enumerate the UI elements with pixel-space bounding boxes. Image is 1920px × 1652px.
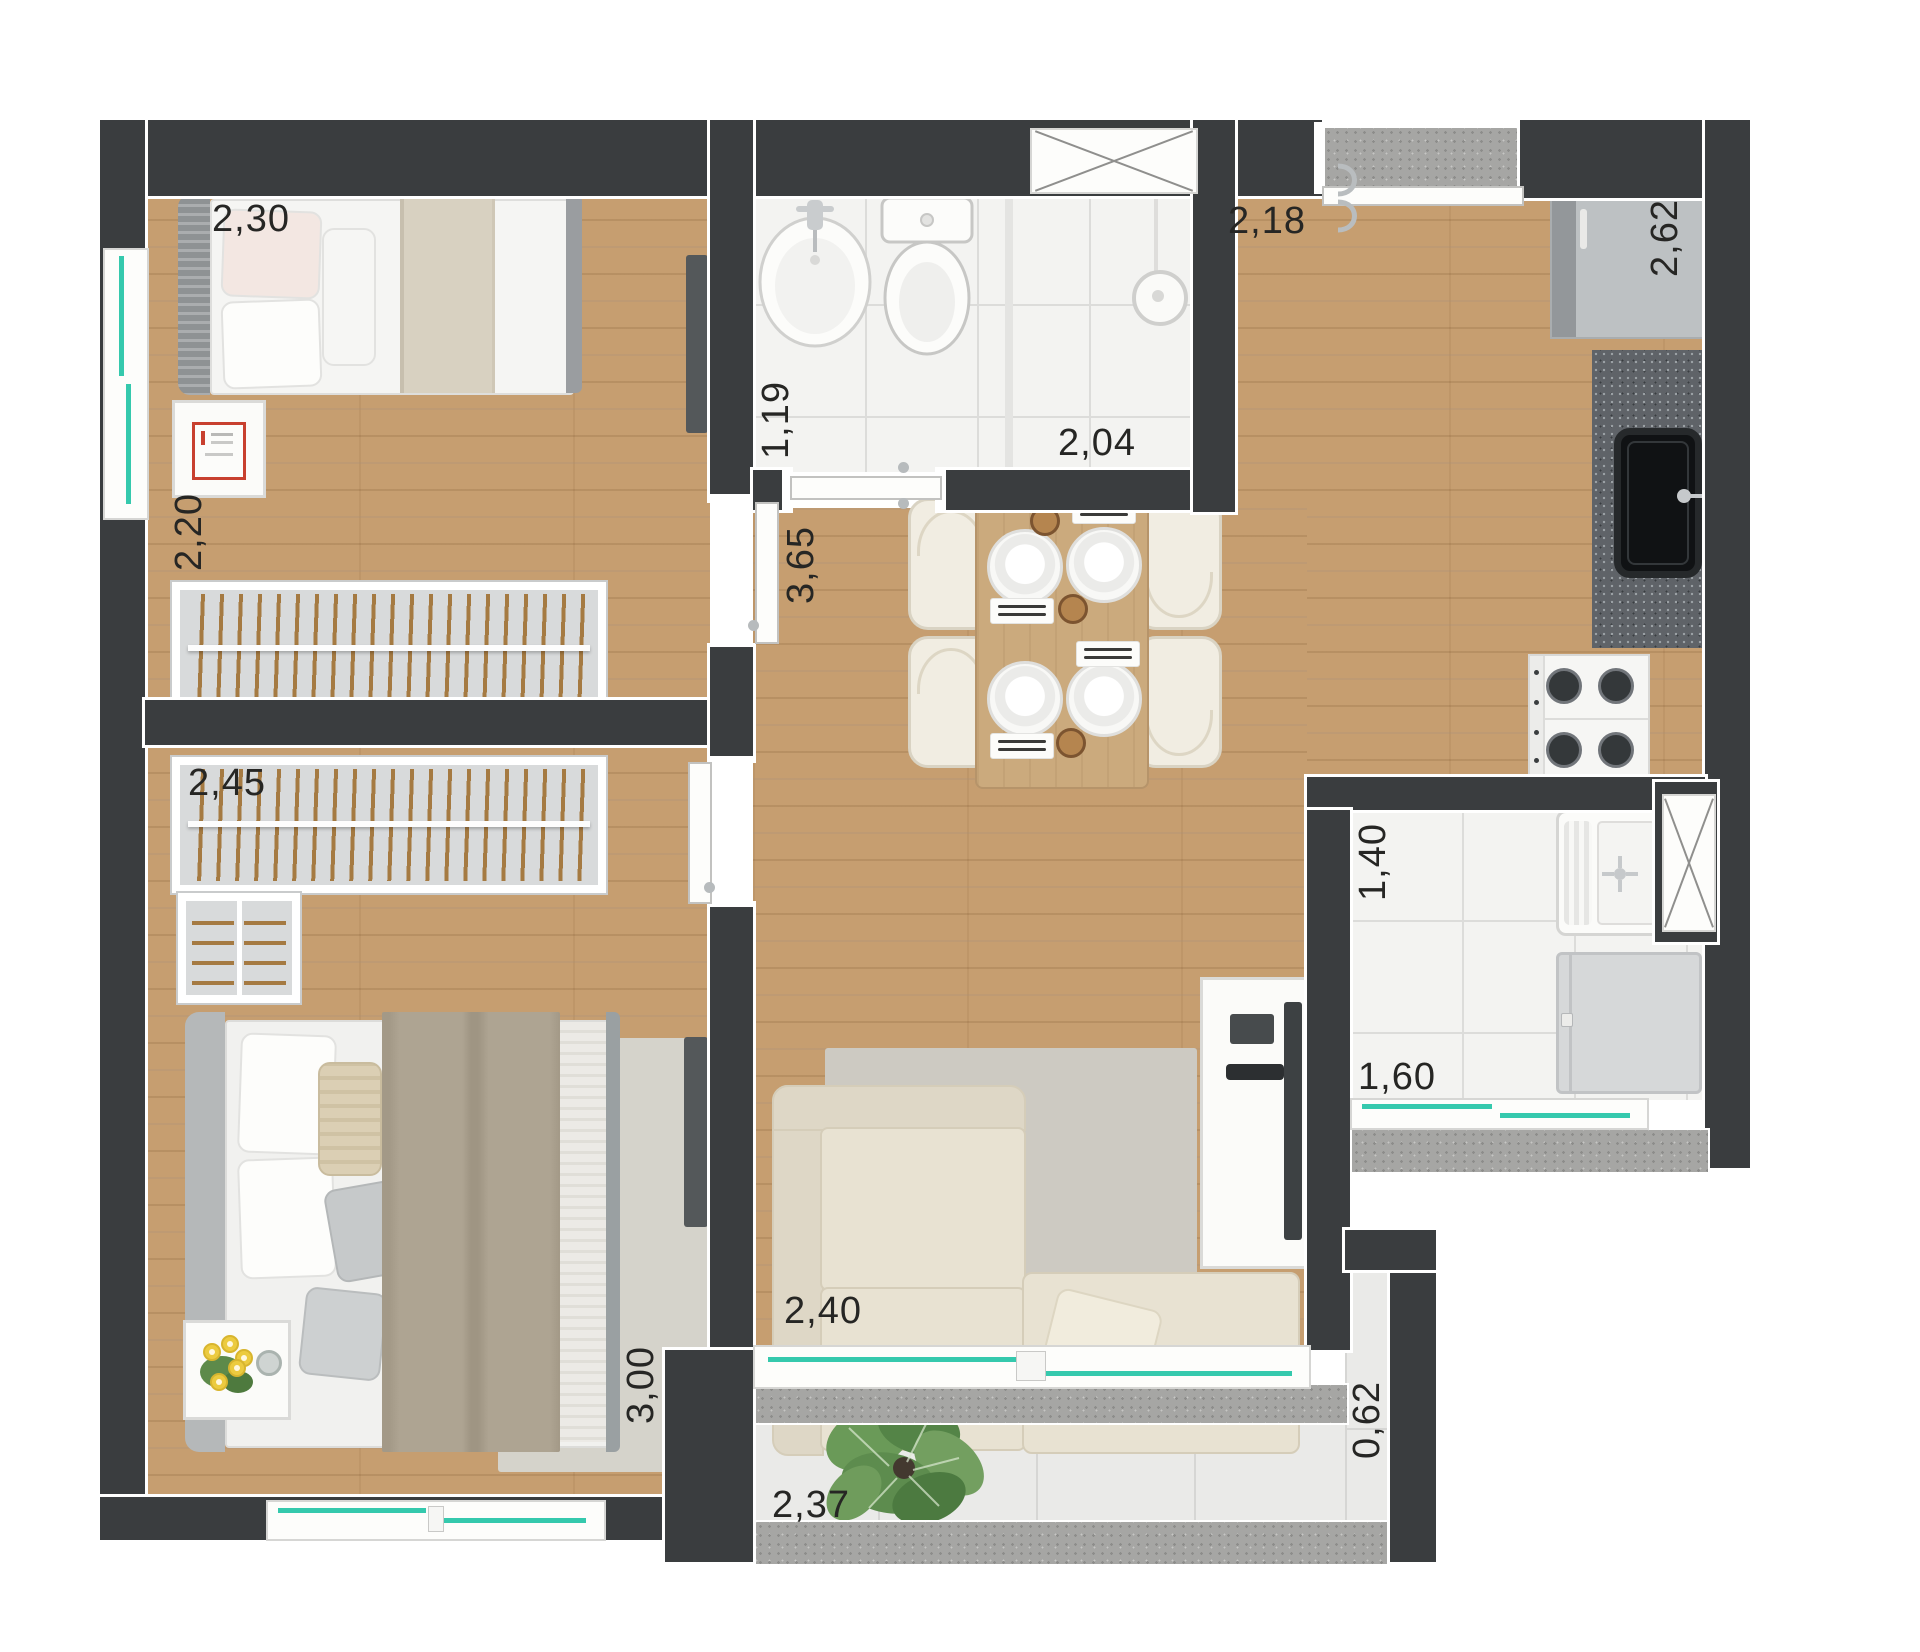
plate xyxy=(1066,661,1142,737)
pillow xyxy=(322,228,376,366)
bathroom-window xyxy=(1030,128,1198,194)
label-service-width: 1,40 xyxy=(1352,802,1392,922)
window-handle xyxy=(428,1506,444,1532)
laundry-faucet xyxy=(1598,852,1642,896)
door-handle xyxy=(704,882,715,893)
label-closet-wall-width: 2,45 xyxy=(188,762,266,805)
wall-balcony-nook-cap xyxy=(1345,1230,1436,1270)
service-window-glass xyxy=(1500,1113,1630,1118)
pillow-gray xyxy=(298,1286,389,1382)
wall-center-upper xyxy=(710,120,753,500)
label-balcony-depth: 0,62 xyxy=(1346,1360,1386,1480)
door-handle xyxy=(898,462,909,473)
cup xyxy=(1056,728,1086,758)
balcony-sill xyxy=(720,1383,1349,1425)
drawer-unit xyxy=(178,893,300,1003)
bed-single-headboard xyxy=(178,195,210,395)
sofa-seat xyxy=(820,1127,1026,1291)
wardrobe-rod xyxy=(188,821,589,827)
door-jamb xyxy=(710,494,753,501)
pillow xyxy=(220,298,322,389)
bed-double-footboard xyxy=(606,1012,620,1452)
sliding-door-glass xyxy=(768,1357,1018,1362)
bed-single-blanket xyxy=(400,197,495,393)
plate xyxy=(987,661,1063,737)
bed-double-ribbed-mattress xyxy=(560,1022,606,1442)
service-sill xyxy=(1350,1128,1710,1174)
label-bathroom-entry: 1,19 xyxy=(755,360,795,480)
door-jamb xyxy=(710,756,753,763)
label-bathroom-width: 2,04 xyxy=(1058,422,1136,465)
label-balcony-width: 2,37 xyxy=(772,1484,850,1527)
label-bedroom1-width: 2,30 xyxy=(212,198,290,241)
cup xyxy=(256,1350,282,1376)
bathroom-sink xyxy=(758,198,872,350)
wall-balcony-left-block xyxy=(665,1350,753,1562)
bedroom1-window-glass xyxy=(126,384,131,504)
cutlery-set xyxy=(990,598,1054,624)
label-kitchen-entry-width: 2,18 xyxy=(1228,200,1306,243)
door-handle xyxy=(748,620,759,631)
stove-burner xyxy=(1598,668,1634,704)
bathroom-door-leaf xyxy=(790,476,942,500)
label-bedroom1-depth: 2,20 xyxy=(168,472,208,592)
bedroom1-window-glass xyxy=(119,256,124,376)
wardrobe-rod xyxy=(188,645,589,651)
door-jamb xyxy=(710,900,753,907)
label-kitchen-depth: 2,62 xyxy=(1644,178,1684,298)
wall-living-right xyxy=(1307,810,1350,1350)
wall-center-lower xyxy=(710,904,753,1350)
media-box xyxy=(1230,1014,1274,1044)
label-living-width: 2,40 xyxy=(784,1290,862,1333)
stove-burner xyxy=(1546,668,1582,704)
label-service-depth: 1,60 xyxy=(1358,1056,1436,1099)
cutlery-set xyxy=(1076,641,1140,667)
pillow xyxy=(237,1156,337,1279)
bedroom1-tv-panel xyxy=(686,255,708,433)
stove-burner xyxy=(1598,732,1634,768)
bedroom2-window-glass xyxy=(278,1508,426,1513)
remote-control xyxy=(1226,1064,1284,1080)
sliding-door-handle xyxy=(1016,1351,1046,1381)
apartment-floor-plan: 2,30 2,20 2,45 3,00 1,19 3,65 2,04 2,18 … xyxy=(0,0,1920,1652)
wall-bathroom-bottom-right xyxy=(938,470,1193,510)
entry-door-handle xyxy=(1330,162,1366,234)
toilet xyxy=(876,196,978,358)
door-handle xyxy=(898,498,909,509)
wall-bathroom-right xyxy=(1193,120,1235,512)
wall-bedroom-divider xyxy=(145,700,710,745)
wall-center-mid xyxy=(710,646,753,760)
bed-single-footboard xyxy=(566,195,582,393)
door-jamb xyxy=(710,640,753,647)
bed-double-duvet xyxy=(382,1012,560,1452)
tv xyxy=(1284,1002,1302,1240)
cutlery-set xyxy=(990,733,1054,759)
label-bedroom2-depth: 3,00 xyxy=(620,1325,660,1445)
plate xyxy=(987,529,1063,605)
bedroom1-wardrobe xyxy=(172,582,606,716)
cup xyxy=(1030,506,1060,536)
entry-threshold xyxy=(1314,122,1322,194)
service-window xyxy=(1662,794,1716,932)
pillow-striped xyxy=(318,1062,382,1176)
sofa-armrest xyxy=(772,1085,1026,1131)
chair-back xyxy=(1145,710,1212,756)
cup xyxy=(1058,594,1088,624)
plate xyxy=(1066,527,1142,603)
stove-burner xyxy=(1546,732,1582,768)
wall-right-outer xyxy=(1705,120,1750,1168)
bedroom2-dresser xyxy=(684,1037,708,1227)
flower-bouquet xyxy=(192,1326,262,1406)
wall-balcony-right xyxy=(1390,1230,1436,1562)
chair-back xyxy=(1145,572,1212,618)
shelves xyxy=(192,905,234,991)
label-hall-length: 3,65 xyxy=(780,505,820,625)
shower-hose xyxy=(1154,192,1158,276)
sliding-door-glass xyxy=(1042,1371,1292,1376)
washing-machine xyxy=(1556,952,1702,1094)
bedroom2-window-glass xyxy=(438,1518,586,1523)
shelves xyxy=(244,905,286,991)
stove xyxy=(1528,654,1650,782)
shower-partition xyxy=(1005,192,1013,472)
shower-head xyxy=(1132,270,1188,326)
service-window-glass xyxy=(1362,1104,1492,1109)
